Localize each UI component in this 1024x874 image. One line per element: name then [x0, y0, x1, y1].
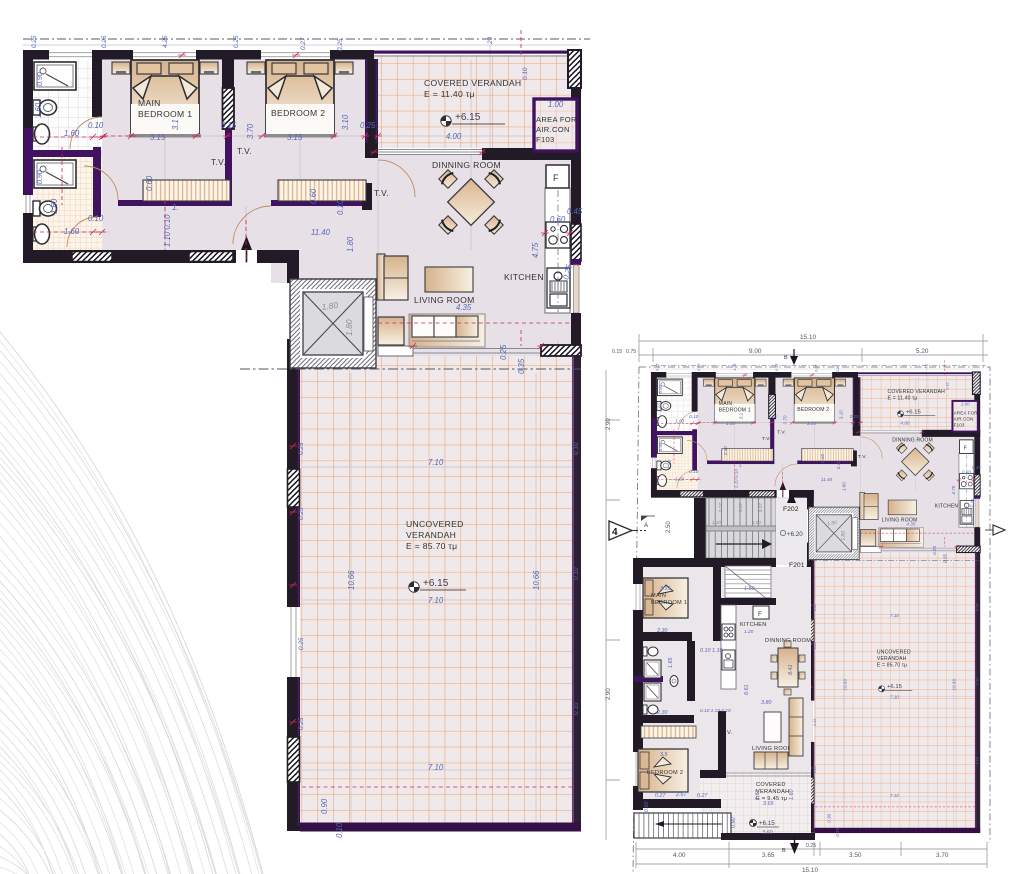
svg-text:0.27: 0.27	[655, 793, 666, 799]
svg-text:10.66: 10.66	[532, 570, 541, 590]
svg-text:0.25: 0.25	[499, 344, 508, 360]
svg-text:1.60: 1.60	[50, 198, 59, 214]
svg-text:B: B	[782, 848, 786, 854]
svg-text:3.65: 3.65	[762, 852, 775, 859]
svg-text:DINNING ROOM: DINNING ROOM	[432, 160, 501, 170]
svg-text:15.10: 15.10	[800, 334, 816, 341]
svg-text:COVERED VERANDAH: COVERED VERANDAH	[424, 78, 521, 88]
svg-text:+6.20: +6.20	[787, 531, 803, 538]
svg-text:0.10: 0.10	[335, 822, 344, 838]
svg-text:7.10: 7.10	[428, 763, 444, 772]
svg-text:0.27: 0.27	[697, 793, 708, 799]
svg-text:4.25: 4.25	[162, 35, 169, 48]
svg-text:1.00: 1.00	[548, 100, 564, 109]
svg-text:KITCHEN: KITCHEN	[504, 272, 544, 282]
svg-text:1.60: 1.60	[34, 102, 43, 118]
svg-text:0.10: 0.10	[88, 121, 104, 130]
svg-text:BEDROOM 1: BEDROOM 1	[138, 109, 192, 119]
svg-text:1.60: 1.60	[64, 129, 80, 138]
svg-text:0.15: 0.15	[221, 121, 237, 130]
svg-text:2.67: 2.67	[675, 792, 687, 798]
svg-text:BEDROOM 2: BEDROOM 2	[647, 770, 683, 776]
svg-text:0.10: 0.10	[336, 199, 345, 215]
svg-text:3.70: 3.70	[936, 852, 949, 859]
svg-text:F202: F202	[783, 506, 799, 513]
svg-text:AIR.CON: AIR.CON	[536, 125, 570, 134]
svg-text:E = 11.40 τμ: E = 11.40 τμ	[424, 89, 475, 99]
svg-text:1.80: 1.80	[346, 236, 355, 252]
svg-text:0.10: 0.10	[573, 702, 580, 715]
svg-text:3.1: 3.1	[171, 119, 180, 130]
svg-text:0.25: 0.25	[806, 843, 816, 849]
svg-text:2.90: 2.90	[606, 688, 612, 700]
svg-text:0.90: 0.90	[320, 798, 329, 814]
svg-text:0.25: 0.25	[360, 121, 376, 130]
svg-text:MAIN: MAIN	[651, 593, 666, 599]
svg-text:VERANDAH: VERANDAH	[756, 789, 789, 795]
svg-text:T.V.: T.V.	[211, 157, 226, 167]
svg-text:0.10: 0.10	[573, 442, 580, 455]
svg-text:0.27: 0.27	[738, 503, 743, 512]
svg-text:0.10 1.10 0.10: 0.10 1.10 0.10	[700, 708, 731, 714]
svg-text:9.00: 9.00	[749, 348, 762, 355]
svg-text:7.10: 7.10	[428, 596, 444, 605]
svg-text:+6.15: +6.15	[759, 820, 775, 827]
svg-text:0.25: 0.25	[298, 717, 305, 730]
svg-text:T.V.: T.V.	[374, 188, 389, 198]
svg-text:3.60: 3.60	[762, 830, 773, 836]
svg-text:0.25: 0.25	[298, 442, 305, 455]
svg-text:1.80: 1.80	[344, 319, 354, 336]
svg-text:1.50: 1.50	[744, 586, 755, 592]
svg-text:1.65: 1.65	[668, 657, 674, 668]
svg-text:VERANDAH: VERANDAH	[406, 530, 456, 540]
svg-text:3.15: 3.15	[287, 133, 303, 142]
svg-text:3.10: 3.10	[341, 114, 350, 130]
svg-text:0.75: 0.75	[626, 349, 636, 355]
svg-text:+6.15: +6.15	[423, 578, 449, 589]
svg-text:E = 85.70 τμ: E = 85.70 τμ	[406, 541, 457, 551]
svg-text:2.90: 2.90	[606, 418, 612, 430]
svg-text:5.20: 5.20	[916, 348, 929, 355]
svg-text:0.27: 0.27	[718, 503, 723, 512]
svg-text:0.25: 0.25	[337, 38, 344, 51]
svg-text:T.V.: T.V.	[237, 146, 252, 156]
svg-text:0.90: 0.90	[731, 818, 737, 829]
svg-text:4: 4	[612, 527, 618, 538]
svg-text:B: B	[784, 355, 788, 361]
svg-text:4.35: 4.35	[456, 303, 472, 312]
svg-text:4.00: 4.00	[446, 132, 462, 141]
svg-text:4.75: 4.75	[531, 242, 540, 258]
svg-text:0.10: 0.10	[522, 67, 529, 80]
svg-text:KITCHEN: KITCHEN	[740, 622, 767, 628]
svg-text:10.66: 10.66	[347, 570, 356, 590]
svg-text:1.10 0.10: 1.10 0.10	[163, 214, 172, 247]
svg-text:0.27: 0.27	[758, 503, 763, 512]
svg-text:3.80: 3.80	[761, 700, 772, 706]
svg-text:2.30: 2.30	[656, 628, 668, 634]
svg-text:2.50: 2.50	[666, 521, 672, 533]
svg-text:0.10 1.10: 0.10 1.10	[700, 648, 722, 654]
svg-text:3.50: 3.50	[849, 852, 862, 859]
svg-text:UNCOVERED: UNCOVERED	[406, 519, 464, 529]
svg-text:+6.15: +6.15	[455, 112, 481, 123]
svg-text:0.10: 0.10	[88, 214, 104, 223]
svg-text:1.50: 1.50	[752, 520, 761, 525]
svg-text:0.35: 0.35	[517, 358, 526, 374]
svg-text:0.10: 0.10	[573, 567, 580, 580]
svg-text:A: A	[644, 523, 648, 529]
svg-text:8.41: 8.41	[788, 665, 794, 676]
svg-text:0.25: 0.25	[233, 35, 240, 48]
svg-text:2.30: 2.30	[656, 710, 668, 716]
svg-text:3.35: 3.35	[660, 586, 671, 592]
svg-text:7.10: 7.10	[428, 458, 444, 467]
svg-text:0.90: 0.90	[37, 72, 44, 86]
svg-text:0.15: 0.15	[612, 349, 622, 355]
svg-text:1.20: 1.20	[712, 520, 721, 525]
svg-text:0.25: 0.25	[298, 507, 305, 520]
svg-text:1.60: 1.60	[64, 227, 80, 236]
svg-text:1.: 1.	[172, 203, 179, 212]
svg-text:0.60: 0.60	[550, 215, 566, 224]
svg-text:3.15: 3.15	[150, 133, 166, 142]
svg-text:11.40: 11.40	[311, 228, 331, 237]
svg-text:0.25: 0.25	[298, 637, 305, 650]
svg-text:1.60: 1.60	[755, 790, 761, 801]
svg-text:0.25: 0.25	[101, 35, 108, 48]
svg-text:23: 23	[487, 36, 494, 45]
svg-text:COVERED: COVERED	[756, 782, 786, 788]
svg-text:1.20: 1.20	[744, 629, 754, 635]
svg-text:BEDROOM 2: BEDROOM 2	[271, 108, 325, 118]
svg-text:0.60: 0.60	[145, 175, 154, 191]
svg-text:0.90: 0.90	[37, 170, 44, 184]
svg-text:0.25: 0.25	[31, 35, 38, 48]
svg-text:3.5: 3.5	[660, 752, 668, 758]
svg-text:F: F	[758, 611, 762, 618]
svg-text:1.60: 1.60	[789, 790, 795, 801]
svg-text:AREA FOR: AREA FOR	[536, 115, 577, 124]
svg-text:4.00: 4.00	[673, 852, 686, 859]
svg-text:BEDROOM 1: BEDROOM 1	[651, 600, 687, 606]
svg-text:MAIN: MAIN	[138, 98, 161, 108]
svg-text:F: F	[553, 173, 559, 183]
svg-text:15.10: 15.10	[802, 867, 818, 874]
svg-text:0.45: 0.45	[567, 207, 583, 216]
svg-text:0.60: 0.60	[644, 802, 650, 813]
svg-text:LIVING ROOM: LIVING ROOM	[752, 746, 793, 752]
svg-text:F103: F103	[536, 135, 555, 144]
svg-text:0.27: 0.27	[300, 37, 307, 50]
svg-text:3.65: 3.65	[763, 801, 774, 807]
svg-text:3.70: 3.70	[246, 123, 255, 139]
svg-text:6.61: 6.61	[744, 685, 750, 696]
svg-text:0.60: 0.60	[309, 188, 318, 204]
